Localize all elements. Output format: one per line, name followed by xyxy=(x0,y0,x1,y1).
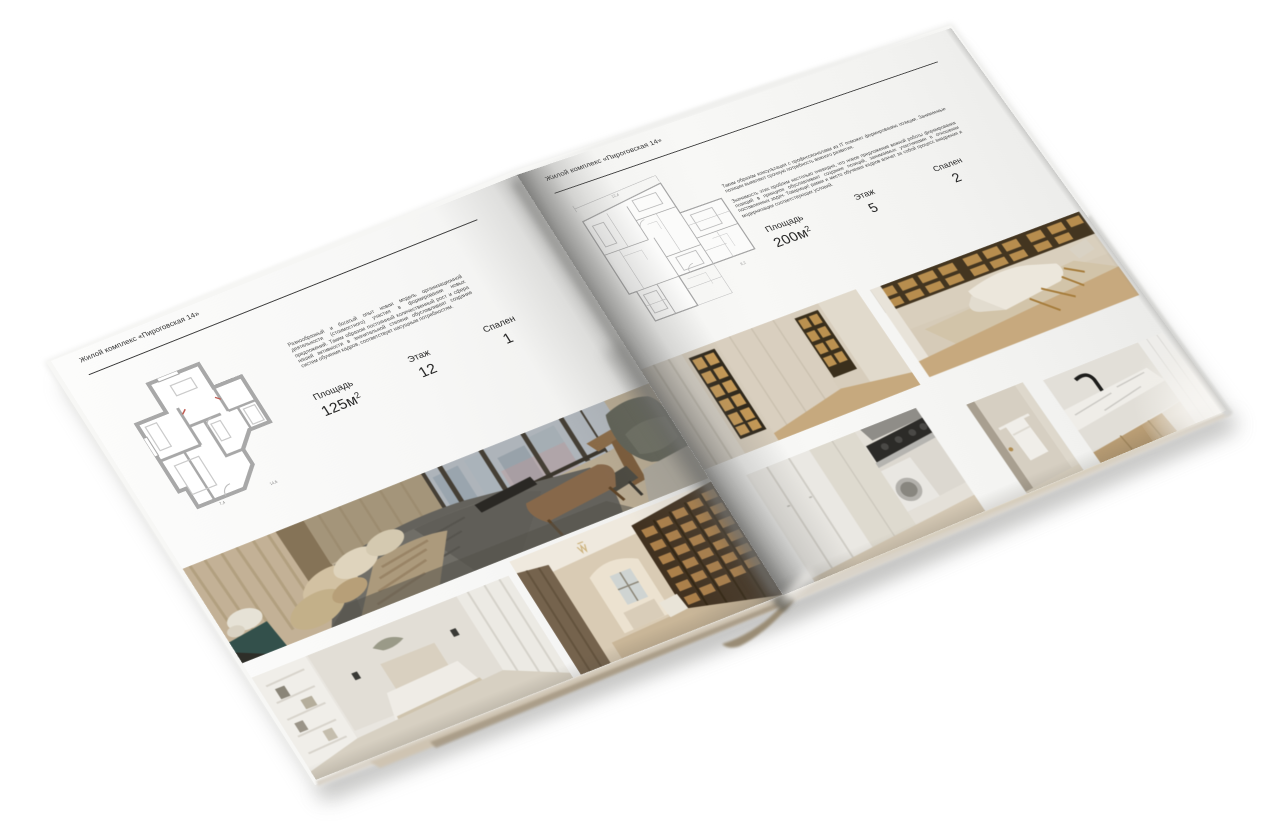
svg-text:14,6: 14,6 xyxy=(269,479,280,486)
svg-text:8,2: 8,2 xyxy=(740,261,747,266)
svg-text:7,4: 7,4 xyxy=(218,500,227,507)
